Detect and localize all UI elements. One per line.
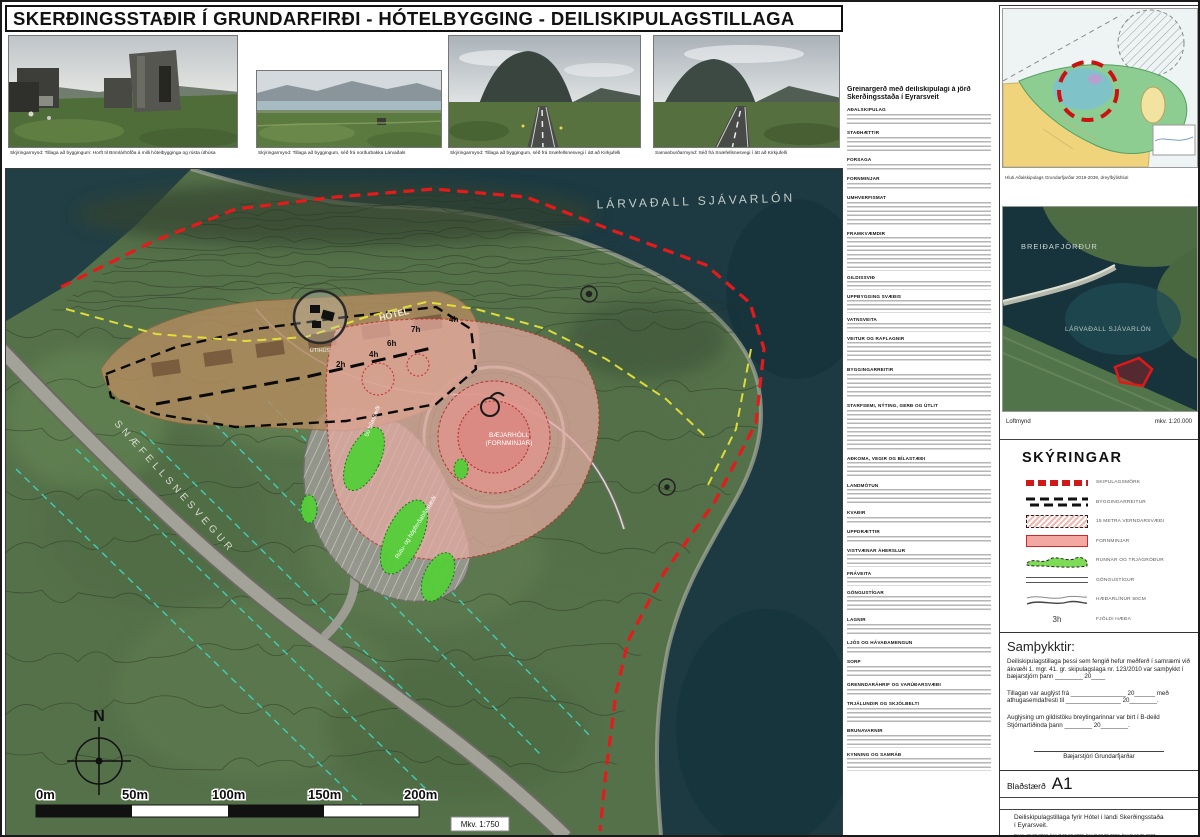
scale-100: 100m: [212, 787, 245, 802]
sheet-size-value: A1: [1052, 774, 1073, 794]
sheet-size-row: Blaðstærð A1: [1000, 770, 1198, 797]
photo-road-kirkjufell-image: [449, 36, 641, 148]
report-section: STARFSEMI, NÝTING, GERÐ OG ÚTLIT: [847, 403, 997, 452]
report-section: FRAMKVÆMDIR: [847, 231, 997, 271]
photo-caption-2: Skýringarmynd: Tillaga að byggingum, séð…: [258, 151, 405, 156]
report-section: AÐKOMA, VEGIR OG BÍLASTÆÐI: [847, 456, 997, 479]
report-sections: AÐALSKIPULAGSTAÐHÆTTIRFORSAGAFORNMINJARU…: [847, 107, 997, 771]
report-section: LANDMÓTUN: [847, 483, 997, 506]
report-section: UPPBYGGING SVÆÐIS: [847, 294, 997, 313]
signature-line: [1034, 751, 1164, 752]
scale-150: 150m: [308, 787, 341, 802]
report-section: GÖNGUSTÍGAR: [847, 590, 997, 613]
outbuildings-label: ÚTIHÚS: [310, 347, 331, 354]
red-dash-swatch: [1026, 476, 1088, 489]
photo-road-comparison: [653, 35, 840, 148]
aerial-lagoon-label: LÁRVAÐALL SJÁVARLÓN: [1065, 324, 1151, 333]
report-section: BRUNAVARNIR: [847, 728, 997, 747]
pink-hatch-swatch: [1026, 515, 1088, 528]
report-title-line2: Skerðingsstaða í Eyrarsveit: [847, 94, 997, 102]
sheet-title-text: SKERÐINGSSTAÐIR Í GRUNDARFIRÐI - HÓTELBY…: [13, 8, 795, 30]
report-section: UPPDRÆTTIR: [847, 529, 997, 544]
report-section: FRÁVEITA: [847, 571, 997, 586]
report-section: KYNNING OG SAMRÁÐ: [847, 752, 997, 771]
scale-200: 200m: [404, 787, 437, 802]
report-section: FORNMINJAR: [847, 176, 997, 191]
scale-50: 50m: [122, 787, 148, 802]
report-section: VEITUR OG RAFLAGNIR: [847, 336, 997, 364]
report-section: LAGNIR: [847, 617, 997, 636]
approvals-paragraph-2: Tillagan var auglýst frá _______________…: [1007, 690, 1191, 705]
photo-caption-1: Skýringarmynd: Tillaga að byggingum: Hor…: [10, 151, 216, 156]
municipal-plan-drawing: [1002, 8, 1198, 168]
green-blob-swatch: [1026, 554, 1088, 567]
photo-caption-4: Samanburðarmynd: Séð frá Snæfellsnesvegi…: [655, 151, 787, 156]
report-section: KVAÐIR: [847, 510, 997, 525]
report-section: LJÓS OG HÁVAÐAMENGUN: [847, 640, 997, 655]
report-section: BYGGINGARREITIR: [847, 367, 997, 399]
sheet-title: SKERÐINGSSTAÐIR Í GRUNDARFIRÐI - HÓTELBY…: [5, 5, 843, 32]
black-dash-swatch: [1026, 496, 1088, 509]
project-dates: Dags. 26.02.2018, breytt 06.02.2020, bre…: [1014, 833, 1192, 837]
mound-label-2: (FORNMINJAR): [486, 440, 533, 447]
mound-label-1: BÆJARHÓLL: [489, 430, 529, 439]
report-section: VATNSVEITA: [847, 317, 997, 332]
legend-item-building-limit: BYGGINGARREITUR: [1026, 496, 1194, 509]
aerial-map: BREIÐAFJÖRÐUR LÁRVAÐALL SJÁVARLÓN Loftmy…: [1002, 206, 1196, 427]
report-section: VISTVÆNAR ÁHERSLUR: [847, 548, 997, 567]
aerial-map-image: BREIÐAFJÖRÐUR LÁRVAÐALL SJÁVARLÓN: [1002, 206, 1198, 412]
photo-road-kirkjufell: [448, 35, 641, 148]
map-scale-label: Mkv. 1:750: [461, 820, 500, 829]
site-plan-map: N 0m 50m 100m 150m 200m Mkv. 1:750 LÁRVA…: [5, 168, 843, 836]
photo-render-ruins-image: [9, 36, 238, 148]
aerial-sea-label: BREIÐAFJÖRÐUR: [1021, 242, 1098, 251]
legend-item-contours: HÆÐARLÍNUR 50CM: [1026, 593, 1194, 606]
svg-text:4h: 4h: [369, 350, 378, 359]
report-section: SORP: [847, 659, 997, 678]
legend-item-fornminjar: FORNMINJAR: [1026, 535, 1194, 548]
map-scale-box: Mkv. 1:750: [451, 817, 509, 831]
legend-item-floors: 3h FJÖLDI HÆÐA: [1026, 613, 1194, 626]
municipal-plan-map: Hluti Aðalskipulags Grundarfjarðar 2019-…: [1002, 8, 1196, 180]
plan-sheet: SKERÐINGSSTAÐIR Í GRUNDARFIRÐI - HÓTELBY…: [0, 0, 1200, 837]
svg-text:7h: 7h: [411, 325, 420, 334]
outbuildings-circle: [294, 291, 346, 343]
municipal-plan-caption: Hluti Aðalskipulags Grundarfjarðar 2019-…: [1005, 175, 1193, 180]
scale-0: 0m: [36, 787, 55, 802]
report-section: UMHVERFISMAT: [847, 195, 997, 227]
photo-field-view-image: [257, 71, 442, 148]
legend-item-plan-boundary: SKIPULAGSMÖRK: [1026, 476, 1194, 489]
sheet-size-label: Blaðstærð: [1007, 781, 1046, 791]
photo-field-view: [256, 70, 442, 148]
contour-swatch: [1026, 593, 1088, 606]
approvals-title: Samþykktir:: [1007, 639, 1191, 654]
pink-solid-swatch: [1026, 535, 1088, 547]
signature-name: Bæjarstjóri Grundarfjarðar: [1007, 753, 1191, 760]
sidebar: Hluti Aðalskipulags Grundarfjarðar 2019-…: [999, 5, 1199, 836]
legend-panel: SKÝRINGAR SKIPULAGSMÖRK BYGGINGARREITUR …: [1000, 439, 1198, 626]
report-column: Greinargerð með deiliskipulagi á jörð Sk…: [847, 86, 997, 835]
double-line-swatch: [1026, 577, 1088, 583]
approvals-paragraph-1: Deiliskipulagstillaga þessi sem fengið h…: [1007, 658, 1191, 681]
report-section: GRENNDARÁHRIF OG VARÚÐARSVÆÐI: [847, 682, 997, 697]
report-section: FORSAGA: [847, 157, 997, 172]
north-label: N: [93, 708, 105, 725]
svg-text:2h: 2h: [336, 360, 345, 369]
site-plan-drawing: N 0m 50m 100m 150m 200m Mkv. 1:750 LÁRVA…: [6, 169, 842, 835]
legend-item-shrubs: RUNNAR OG TRJÁGRÓÐUR: [1026, 554, 1194, 567]
aerial-caption: Loftmynd: [1006, 419, 1031, 425]
report-section: AÐALSKIPULAG: [847, 107, 997, 126]
photo-render-ruins: [8, 35, 238, 148]
project-info: Deiliskipulagstillaga fyrir Hótel í land…: [1000, 809, 1198, 837]
legend-item-footpath: GÖNGUSTÍGUR: [1026, 574, 1194, 587]
project-title: Deiliskipulagstillaga fyrir Hótel í land…: [1014, 814, 1164, 830]
floors-symbol: 3h: [1026, 613, 1088, 626]
svg-text:6h: 6h: [387, 339, 396, 348]
approvals-panel: Samþykktir: Deiliskipulagstillaga þessi …: [1000, 632, 1198, 760]
photo-caption-3: Skýringarmynd: Tillaga að byggingum, séð…: [450, 151, 620, 156]
approvals-paragraph-3: Auglýsing um gildistöku breytingarinnar …: [1007, 714, 1191, 729]
legend-title: SKÝRINGAR: [1022, 450, 1198, 466]
report-section: GILDISSVIÐ: [847, 275, 997, 290]
report-section: TRJÁLUNDIR OG SKJÓLBELTI: [847, 701, 997, 724]
empty-row: [1000, 797, 1198, 809]
report-section: STAÐHÆTTIR: [847, 130, 997, 153]
legend-item-protection-zone: 15 METRA VERNDARSVÆÐI: [1026, 515, 1194, 528]
svg-text:4h: 4h: [449, 315, 458, 324]
aerial-scale: mkv. 1:20.000: [1155, 419, 1192, 425]
report-title-line1: Greinargerð með deiliskipulagi á jörð: [847, 86, 997, 94]
photo-road-comparison-image: [654, 36, 840, 148]
